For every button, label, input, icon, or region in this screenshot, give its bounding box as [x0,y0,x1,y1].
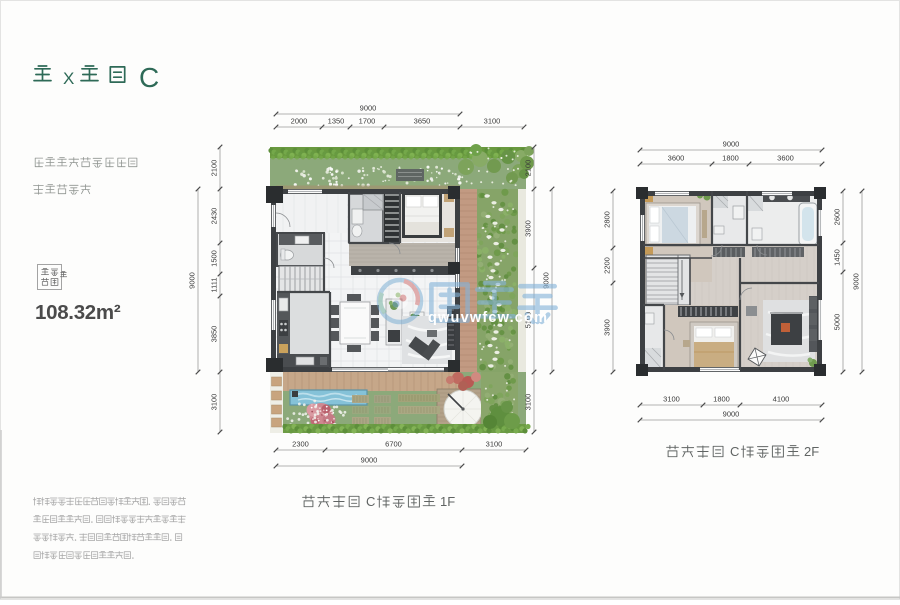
svg-text:3850: 3850 [210,326,219,343]
svg-text:X: X [63,69,74,88]
svg-text:C: C [730,444,739,459]
svg-text:6700: 6700 [385,440,402,449]
svg-text:5000: 5000 [833,314,842,331]
svg-text:1450: 1450 [833,249,842,266]
svg-text:1700: 1700 [359,117,376,126]
svg-text:2600: 2600 [833,209,842,226]
svg-text:2430: 2430 [210,208,219,225]
svg-text:3100: 3100 [524,394,533,411]
svg-text:2100: 2100 [524,160,533,177]
svg-text:9000: 9000 [360,104,377,113]
svg-text:3100: 3100 [484,117,501,126]
svg-text:9000: 9000 [852,273,861,290]
svg-text:2F: 2F [804,444,819,459]
svg-text:9000: 9000 [723,140,740,149]
svg-text:2200: 2200 [603,257,612,274]
svg-text:2800: 2800 [603,211,612,228]
svg-text:2300: 2300 [292,440,309,449]
svg-text:2000: 2000 [291,117,308,126]
svg-text:qwuvwfcw.com: qwuvwfcw.com [428,310,548,326]
svg-text:108.32m²: 108.32m² [35,301,121,324]
svg-text:1350: 1350 [328,117,345,126]
svg-text:3600: 3600 [668,154,685,163]
svg-text:9000: 9000 [723,410,740,419]
svg-text:C: C [139,62,159,93]
svg-text:1F: 1F [440,494,455,509]
svg-text:9000: 9000 [361,456,378,465]
svg-text:3900: 3900 [524,220,533,237]
svg-text:2100: 2100 [210,160,219,177]
svg-text:3600: 3600 [777,154,794,163]
svg-text:1800: 1800 [722,154,739,163]
svg-text:C: C [366,494,375,509]
svg-text:3900: 3900 [603,319,612,336]
svg-text:3650: 3650 [414,117,431,126]
svg-text:1800: 1800 [713,395,730,404]
svg-text:3100: 3100 [486,440,503,449]
svg-text:9000: 9000 [188,272,197,289]
svg-text:4100: 4100 [773,395,790,404]
svg-text:1500: 1500 [210,250,219,267]
svg-text:3100: 3100 [663,395,680,404]
svg-text:3100: 3100 [210,394,219,411]
svg-text:1111: 1111 [210,277,219,292]
